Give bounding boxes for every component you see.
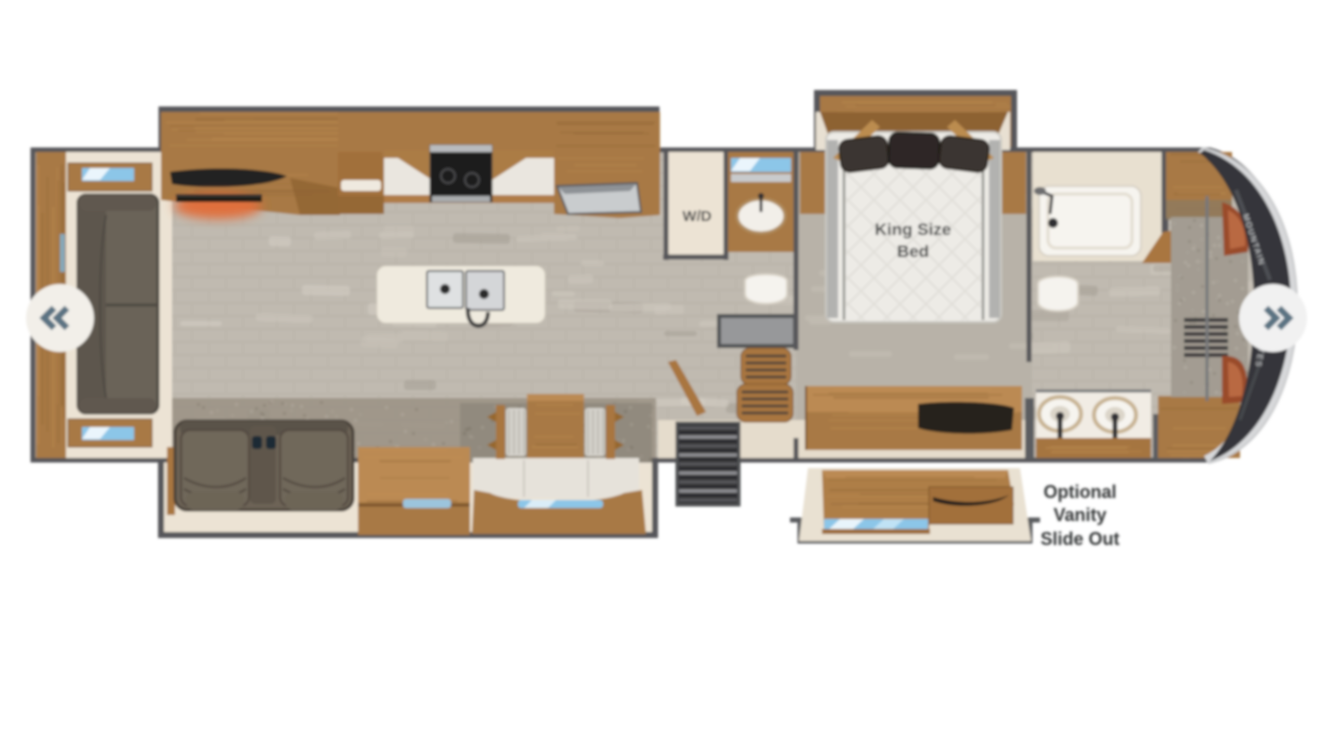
svg-text:Slide Out: Slide Out (1040, 529, 1119, 549)
svg-text:W/D: W/D (682, 208, 711, 225)
svg-text:Vanity: Vanity (1053, 505, 1106, 525)
svg-text:Optional: Optional (1044, 482, 1117, 502)
svg-text:Bed: Bed (897, 242, 929, 261)
svg-text:King Size: King Size (875, 220, 952, 239)
